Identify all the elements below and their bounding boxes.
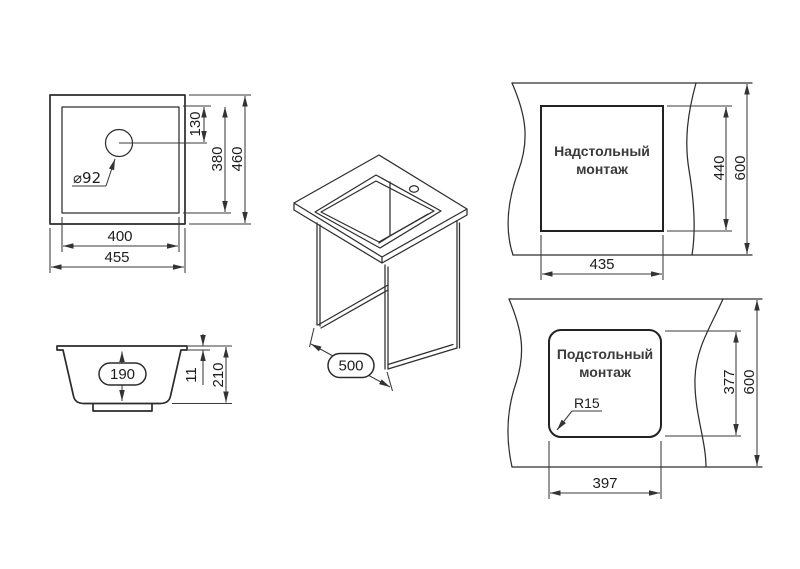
dim-440-label: 440 xyxy=(711,155,728,180)
dim-397-label: 397 xyxy=(592,475,617,492)
dim-210-label: 210 xyxy=(210,362,227,387)
dim-130-label: 130 xyxy=(187,111,204,136)
dim-397: 397 xyxy=(549,441,661,499)
dim-377-label: 377 xyxy=(721,369,738,394)
dim-600-bottom-label: 600 xyxy=(741,369,758,394)
corner-radius-label: R15 xyxy=(574,395,600,411)
dim-455-label: 455 xyxy=(104,249,129,266)
dim-460-label: 460 xyxy=(229,146,246,171)
undermount-cutout-view: Подстольный монтаж R15 377 600 397 xyxy=(508,299,762,499)
topmount-cutout-view: Надстольный монтаж 440 600 435 xyxy=(508,83,752,280)
section-view: 190 11 210 xyxy=(57,334,232,411)
section-foot-outline xyxy=(93,404,152,412)
undermount-break-lines xyxy=(508,299,723,467)
undermount-title-line1: Подстольный xyxy=(557,346,653,362)
topmount-title-line2: монтаж xyxy=(576,161,629,177)
plan-outer-outline xyxy=(50,95,185,224)
dim-435: 435 xyxy=(541,235,663,280)
dim-435-label: 435 xyxy=(589,256,614,273)
sink-drawing-svg: ⌀92 130 380 460 400 455 xyxy=(0,0,800,569)
technical-drawing: ⌀92 130 380 460 400 455 xyxy=(0,0,800,569)
dim-190: 190 xyxy=(99,352,146,402)
undermount-title-line2: монтаж xyxy=(579,364,632,380)
hole-leader-line xyxy=(106,159,115,186)
dim-377: 377 xyxy=(665,331,741,436)
dim-11-label: 11 xyxy=(183,367,200,383)
topmount-title-line1: Надстольный xyxy=(554,143,650,159)
radius-callout: R15 xyxy=(557,395,602,430)
dim-600-top-label: 600 xyxy=(732,155,749,180)
dim-190-label: 190 xyxy=(110,366,135,383)
dim-400-label: 400 xyxy=(107,228,132,245)
isometric-view: 500 xyxy=(294,155,467,391)
plan-inner-outline xyxy=(62,107,179,213)
dim-400: 400 xyxy=(62,217,179,252)
dim-440: 440 xyxy=(667,106,732,231)
drain-hole-callout: ⌀92 xyxy=(72,159,115,187)
iso-sink-rim-inner xyxy=(321,181,434,242)
radius-leader-line xyxy=(557,411,572,430)
dim-600-bottom: 600 xyxy=(741,300,758,466)
dim-11-extensions xyxy=(188,346,232,350)
dim-500: 500 xyxy=(310,328,393,391)
dim-600-top: 600 xyxy=(732,84,749,254)
dim-130: 130 xyxy=(183,106,211,142)
hole-diameter-label: ⌀92 xyxy=(73,169,101,187)
faucet-hole xyxy=(410,186,419,192)
dim-210: 210 xyxy=(172,347,232,404)
dim-500-label: 500 xyxy=(338,358,363,375)
iso-right-panel-bottom xyxy=(388,345,457,370)
plan-view: ⌀92 130 380 460 400 455 xyxy=(50,95,251,273)
iso-sink-rim-outer xyxy=(315,175,441,248)
dim-380-label: 380 xyxy=(209,146,226,171)
iso-left-panel-bottom xyxy=(318,285,388,328)
